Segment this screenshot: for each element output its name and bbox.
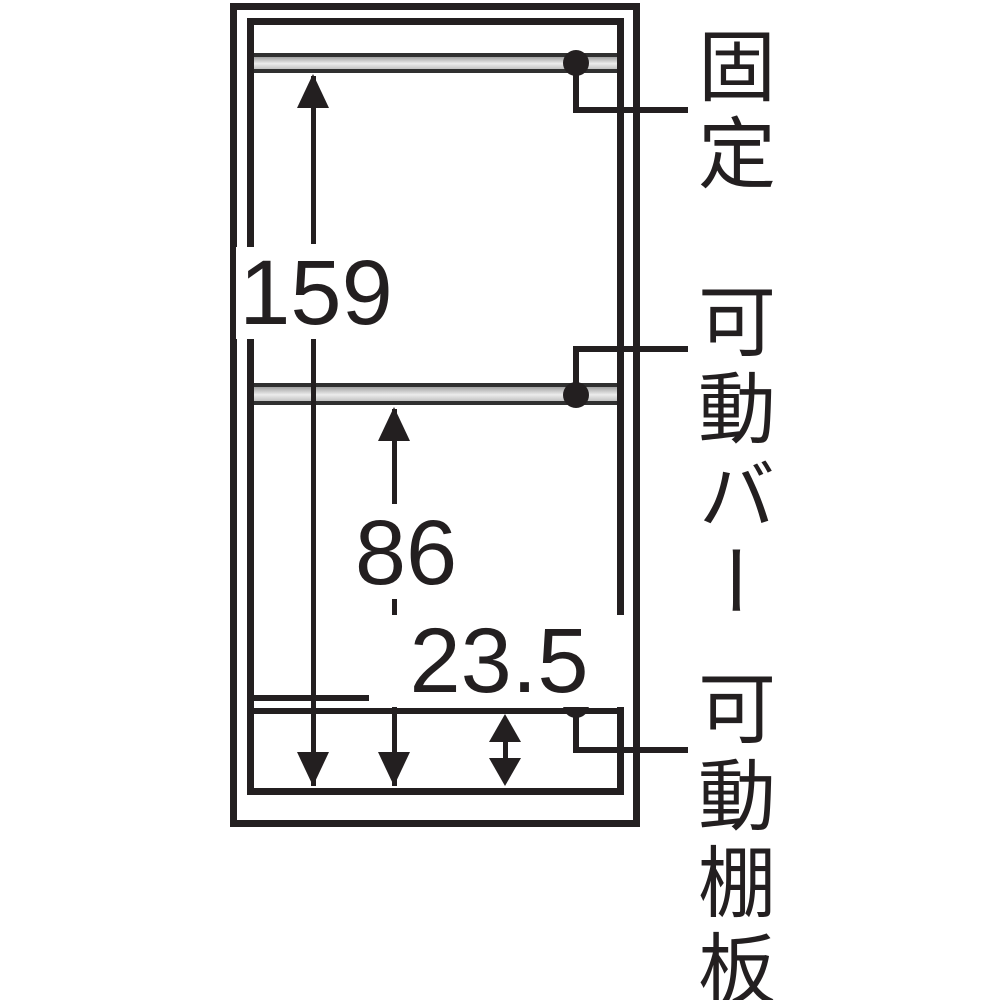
fixed-bar-connector-dot xyxy=(563,50,589,76)
arrow-down-icon xyxy=(378,752,410,786)
dimension-value-159: 159 xyxy=(236,247,396,339)
leader-line-movable-bar-horizontal xyxy=(573,346,688,352)
arrow-up-icon xyxy=(297,74,329,108)
leader-line-fixed-horizontal xyxy=(573,107,688,113)
arrow-down-icon xyxy=(297,752,329,786)
dimension-value-23-5: 23.5 xyxy=(369,615,629,707)
label-fixed: 固定 xyxy=(692,26,770,200)
arrow-up-icon xyxy=(378,407,410,441)
dimension-line-159-lower xyxy=(311,332,316,786)
movable-bar-connector-dot xyxy=(563,382,589,408)
label-movable-shelf-board: 可動棚板 xyxy=(692,668,770,1000)
leader-line-shelf-horizontal xyxy=(573,747,688,753)
arrow-up-icon xyxy=(489,714,521,742)
arrow-down-icon xyxy=(489,758,521,786)
label-movable-bar: 可動バー xyxy=(692,281,770,629)
dimension-value-86: 86 xyxy=(326,507,486,599)
shelf-dimension-diagram: 159 86 23.5 固定 可動バー 可動棚板 xyxy=(0,0,1000,1000)
